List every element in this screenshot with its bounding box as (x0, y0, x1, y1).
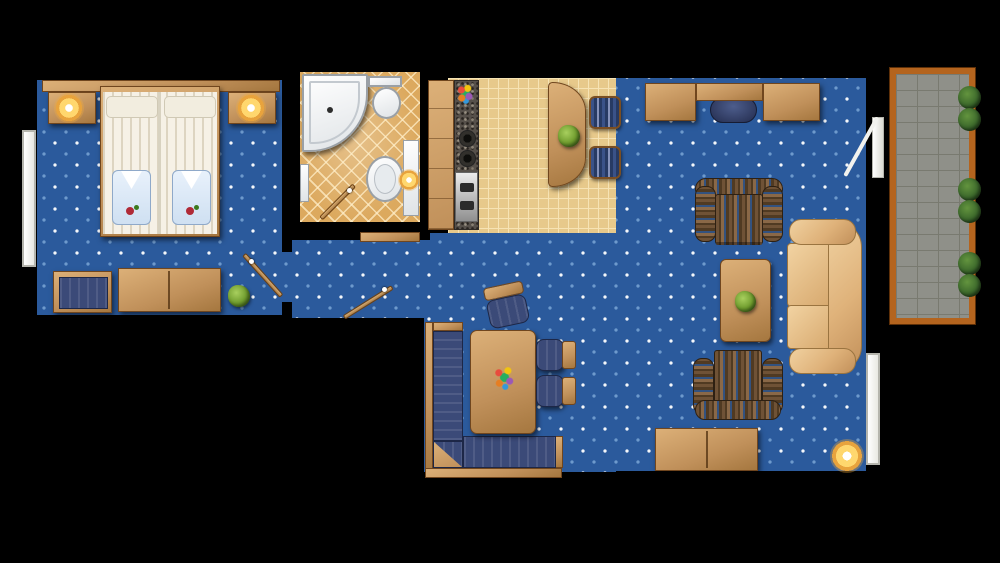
stove-burner-1-icon (459, 130, 476, 147)
sofa (787, 219, 862, 374)
bedside-lamp-right-icon (236, 93, 266, 123)
bathroom-shelf (300, 164, 309, 202)
dresser (118, 268, 221, 312)
robe-collar (121, 171, 142, 189)
shrub-icon (958, 274, 981, 297)
corner-bench-cushion-left (433, 331, 463, 441)
armchair-north (695, 178, 783, 245)
bench-rail-left (425, 322, 433, 478)
folded-robe-right (172, 170, 211, 225)
sideboard-divider (706, 431, 708, 468)
corner-bench-cushion-bottom (463, 436, 556, 468)
sofa-armrest-top (789, 219, 856, 245)
shrub-icon (958, 86, 981, 109)
bed-divider (158, 92, 161, 234)
dining-chair-right-2-seat (536, 375, 564, 407)
flower-centerpiece-icon (491, 365, 517, 391)
bedroom-plant-icon (228, 285, 250, 307)
robe-flower (186, 207, 194, 215)
bathroom-door-threshold (360, 232, 420, 242)
corner-bench-corner-wood (434, 442, 462, 467)
coffee-table-plant-icon (735, 291, 756, 312)
sideboard (655, 428, 758, 471)
floor-lamp-icon (830, 439, 864, 473)
armchair-seat (714, 350, 762, 404)
kitchen-cabinet-run (428, 80, 454, 230)
stove-burner-2-icon (459, 150, 476, 167)
kitchen-flower-vase-icon (456, 84, 474, 104)
bar-stool-2 (589, 146, 621, 179)
bedroom-window (22, 130, 36, 267)
bench-rail-bottom (425, 468, 562, 478)
bathroom-door-handle (347, 188, 352, 193)
dresser-divider (168, 271, 170, 309)
robe-leaf (134, 205, 139, 210)
toilet-bowl (372, 87, 401, 119)
robe-collar (181, 171, 202, 189)
bar-stool-1 (589, 96, 621, 129)
luggage-bench-cushion (59, 277, 108, 309)
oven-slot-2 (460, 201, 474, 210)
entry-door-handle (382, 287, 387, 292)
bench-end-cap-top (433, 322, 463, 331)
armchair-arm-left (695, 186, 716, 242)
sofa-armrest-bottom (789, 348, 856, 374)
bedside-lamp-left-icon (54, 93, 84, 123)
pillow-right (164, 96, 216, 118)
folded-robe-left (112, 170, 151, 225)
shrub-icon (958, 200, 981, 223)
dining-chair-top (479, 280, 536, 335)
living-room-window (866, 353, 880, 465)
bedroom-door-handle (249, 259, 254, 264)
dining-chair-right-1-seat (536, 339, 564, 371)
armchair-seat (715, 194, 763, 245)
desk-shelf (696, 83, 763, 101)
robe-leaf (194, 205, 199, 210)
corner-bench-corner (433, 441, 463, 468)
oven-slot-1 (460, 183, 474, 192)
dining-chair-right-2-back (562, 377, 576, 405)
armchair-south (693, 350, 783, 420)
armchair-arm-right (762, 186, 783, 242)
armchair-back (695, 400, 781, 420)
pillow-left (106, 96, 158, 118)
twin-beds (100, 86, 220, 237)
floor-plan (0, 0, 1000, 563)
shrub-icon (958, 178, 981, 201)
dining-chair-right-1-back (562, 341, 576, 369)
bathtub-drain (327, 107, 333, 113)
bench-end-cap-right (555, 436, 563, 468)
desk-right (763, 83, 820, 121)
robe-flower (126, 207, 134, 215)
washbasin-bowl (374, 164, 396, 194)
shrub-icon (958, 108, 981, 131)
vanity-lamp-icon (398, 169, 420, 191)
luggage-bench (53, 271, 112, 313)
toilet-tank (368, 76, 402, 87)
breakfast-bar-plant-icon (558, 125, 580, 147)
desk-left (645, 83, 696, 121)
oven (455, 172, 478, 222)
shrub-icon (958, 252, 981, 275)
